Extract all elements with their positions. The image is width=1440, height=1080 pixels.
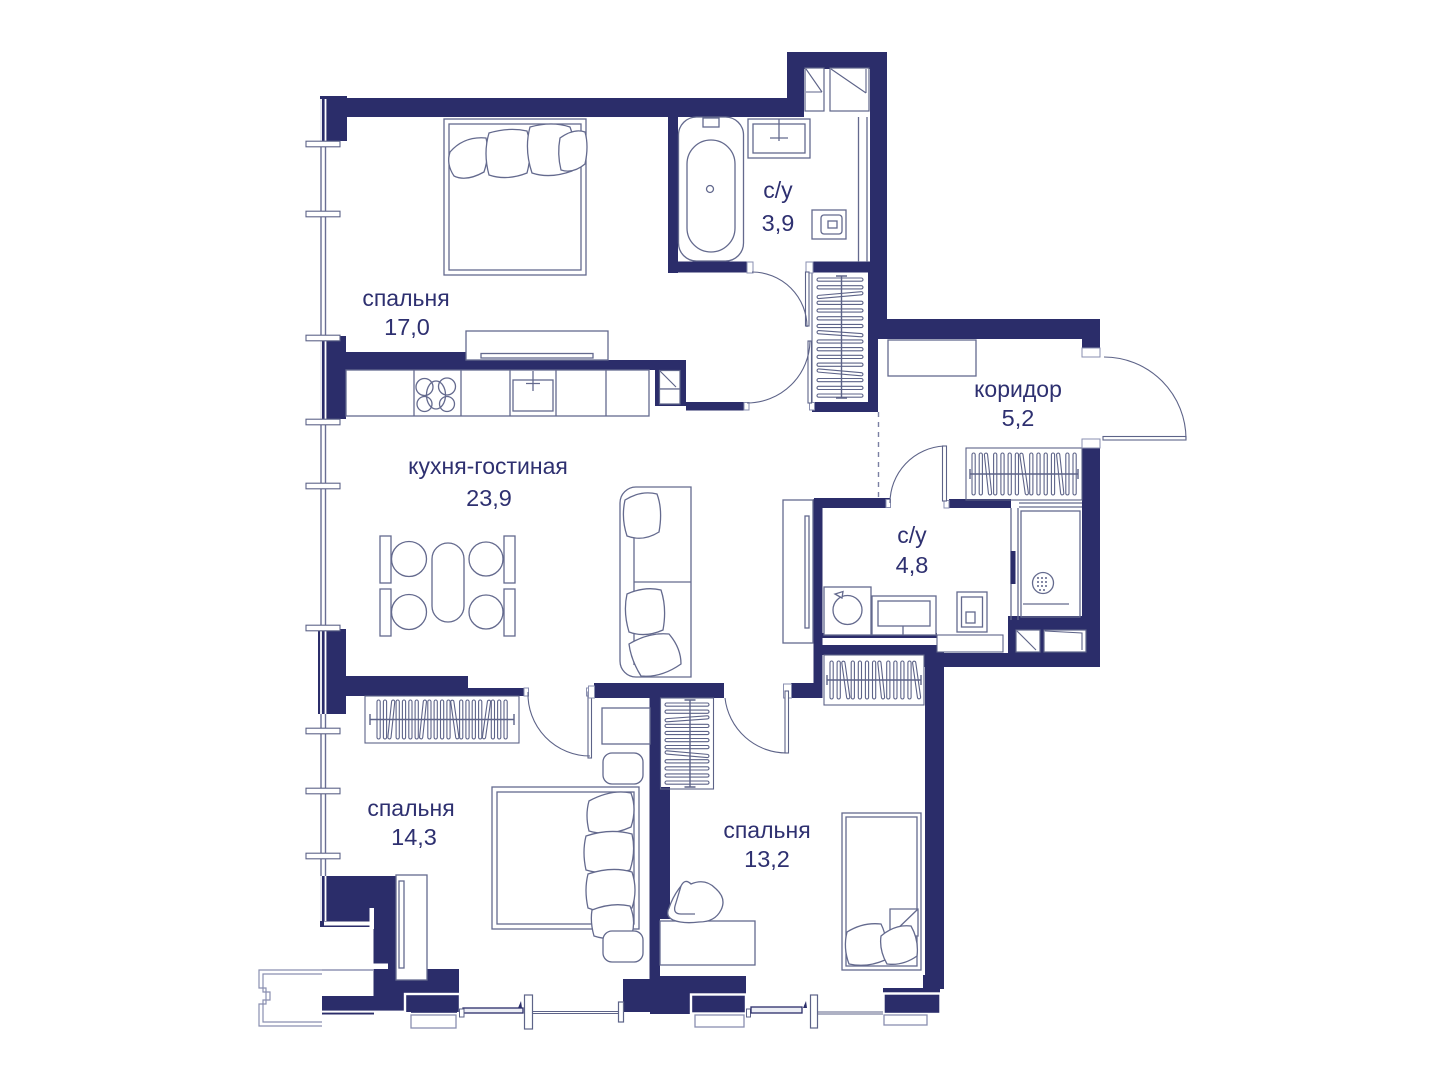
svg-text:13,2: 13,2 (744, 846, 790, 872)
svg-text:спальня: спальня (723, 817, 810, 843)
svg-text:5,2: 5,2 (1002, 405, 1035, 431)
svg-text:23,9: 23,9 (466, 485, 512, 511)
svg-text:14,3: 14,3 (391, 824, 437, 850)
svg-text:спальня: спальня (362, 285, 449, 311)
svg-text:3,9: 3,9 (762, 210, 795, 236)
svg-text:с/у: с/у (897, 522, 927, 548)
svg-text:кухня-гостиная: кухня-гостиная (408, 453, 568, 479)
svg-text:с/у: с/у (763, 177, 793, 203)
svg-text:коридор: коридор (974, 376, 1062, 402)
svg-text:спальня: спальня (367, 795, 454, 821)
svg-text:17,0: 17,0 (384, 314, 430, 340)
svg-text:4,8: 4,8 (896, 552, 929, 578)
